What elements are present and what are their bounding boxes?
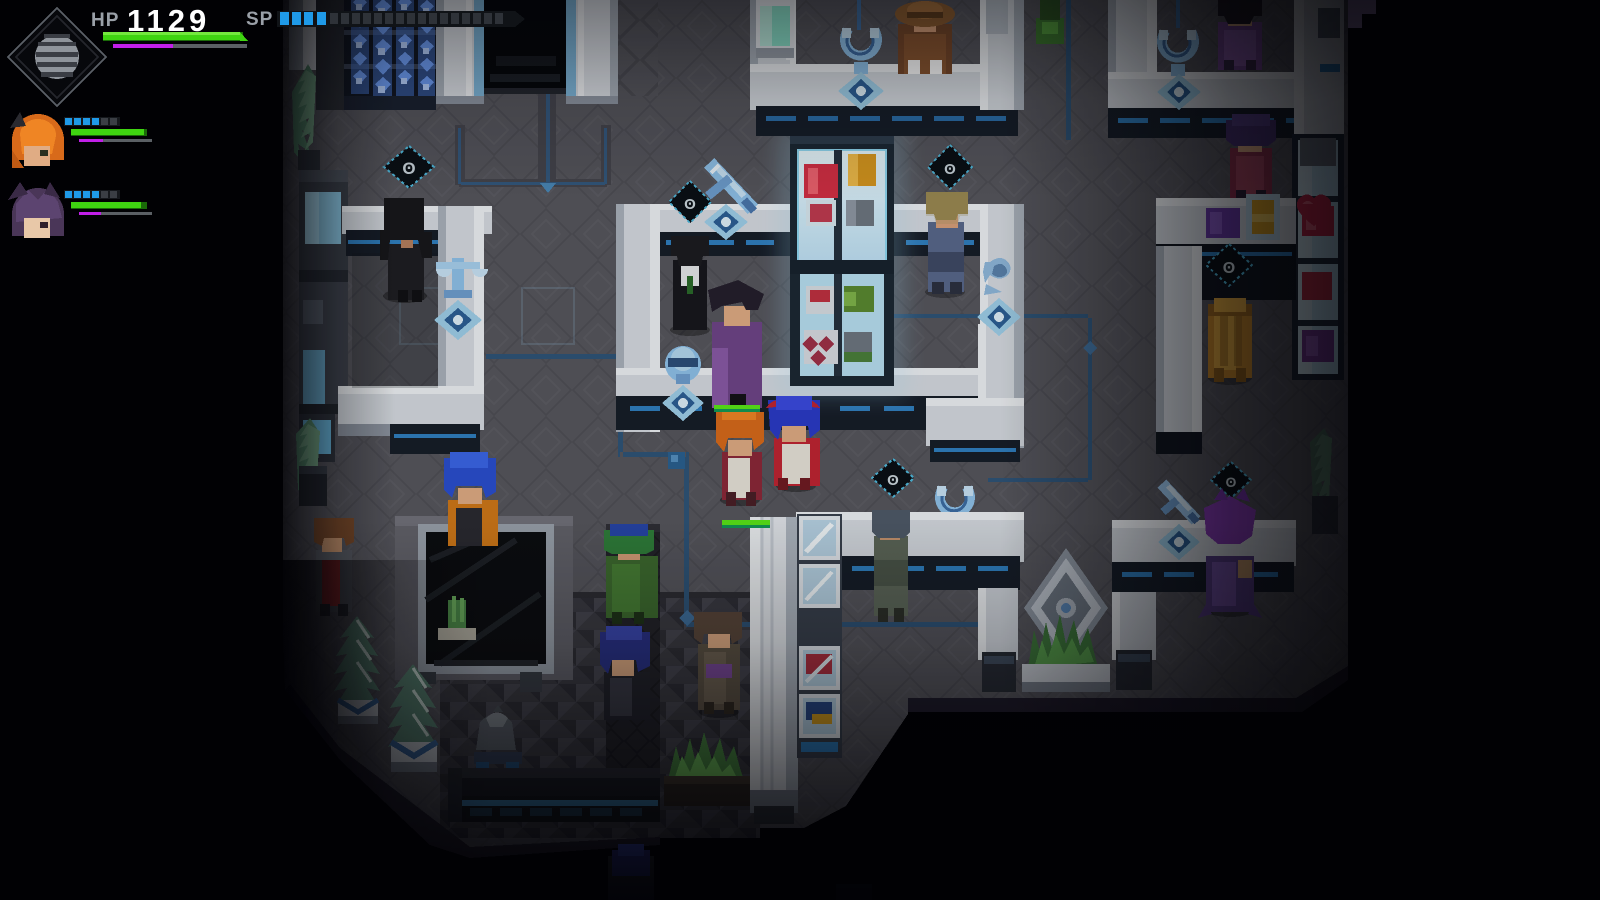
svg-text:HP: HP [91, 10, 119, 31]
svg-text:SP: SP [246, 9, 273, 30]
